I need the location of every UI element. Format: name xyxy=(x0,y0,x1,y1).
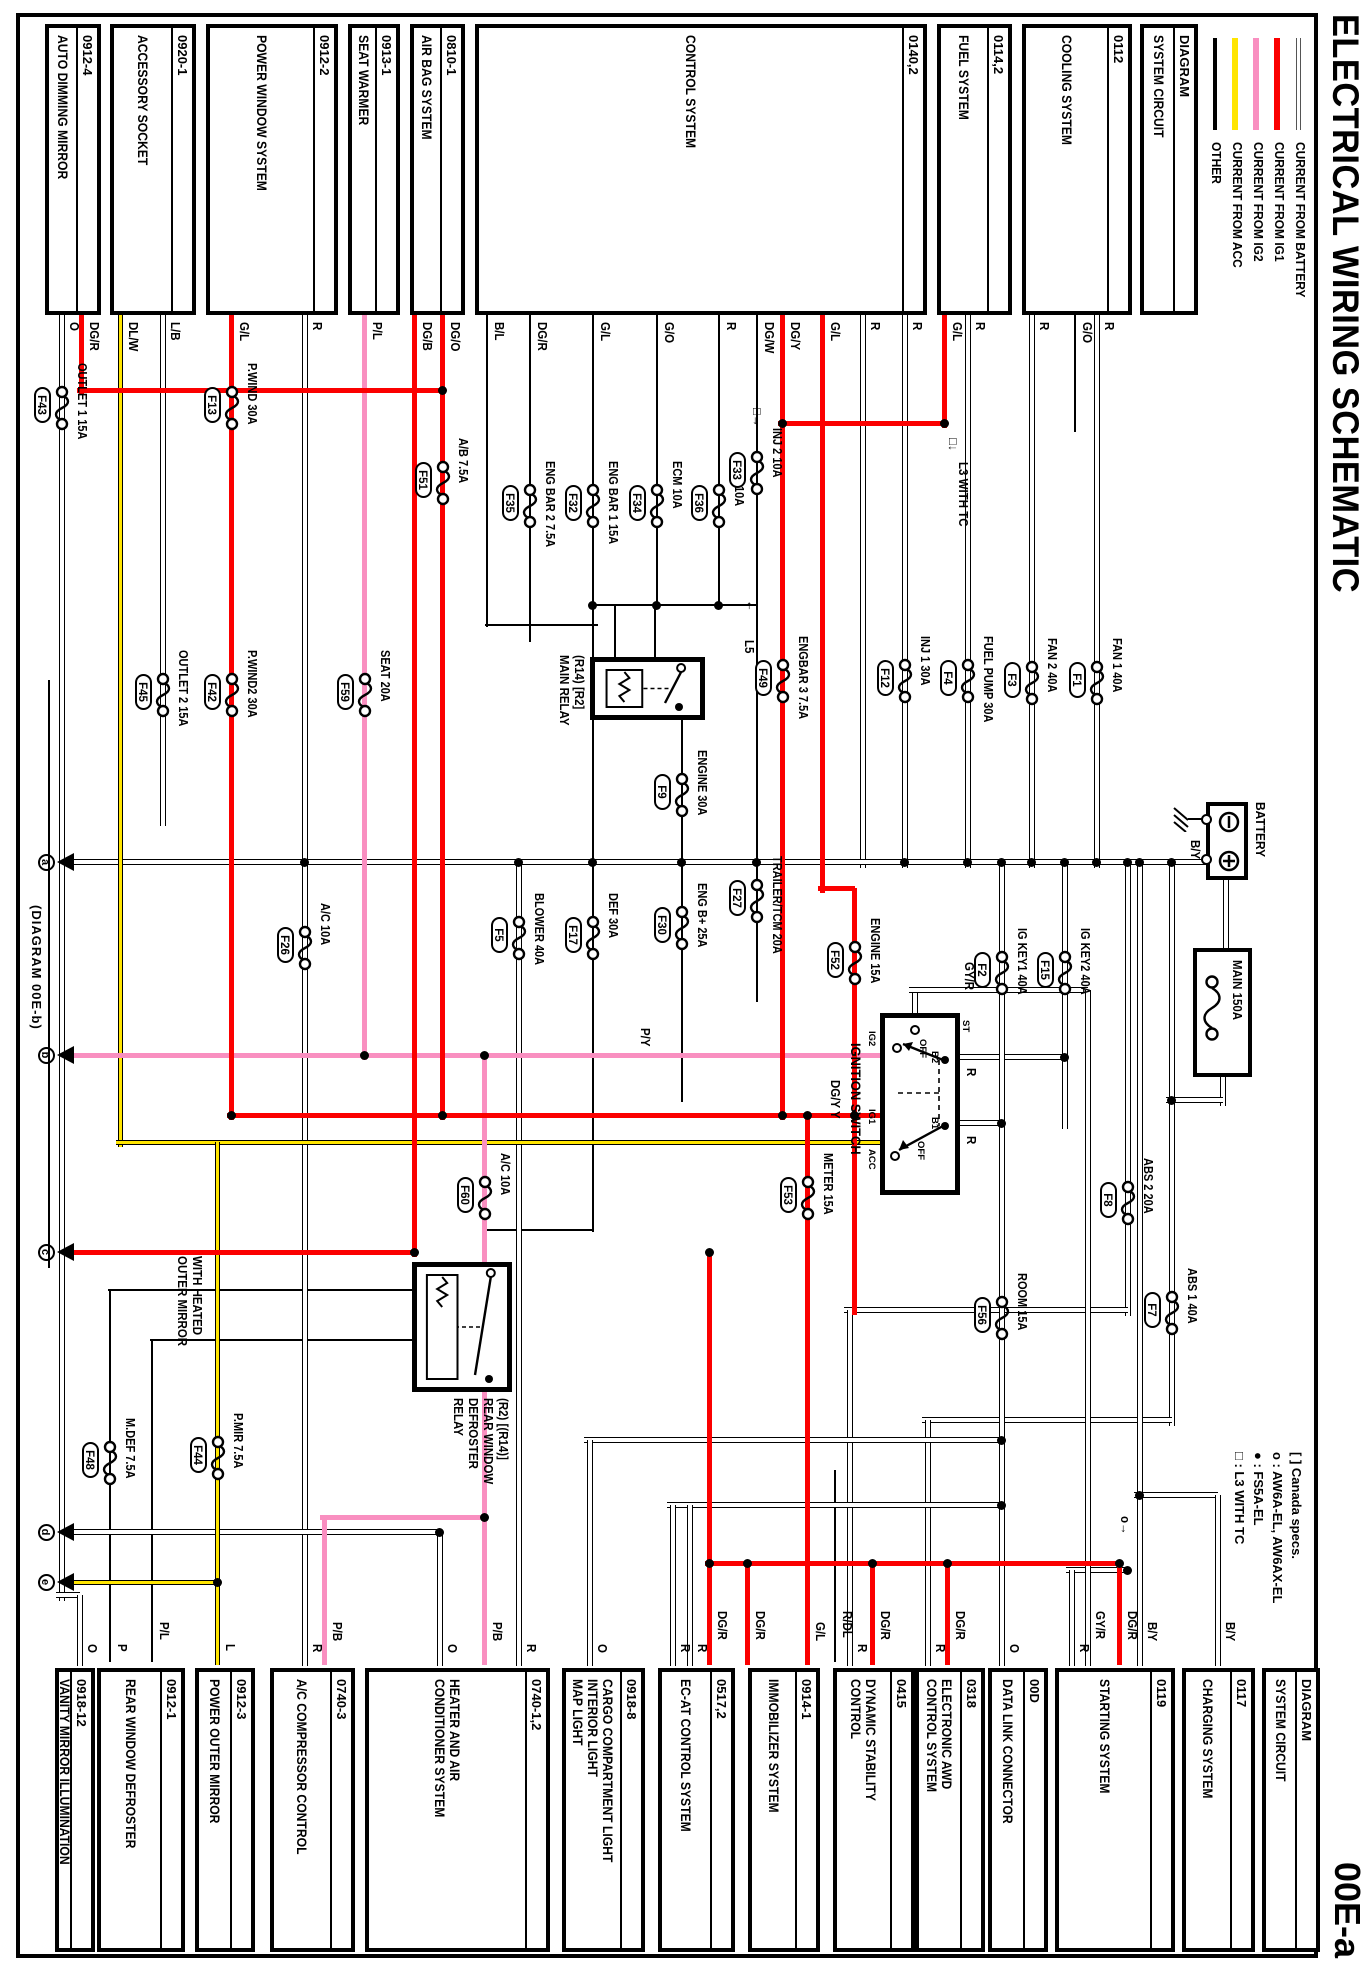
wire-code-label: R/DL xyxy=(840,1611,854,1638)
battery-symbol-icon xyxy=(1210,806,1244,876)
fuse-element-icon xyxy=(774,658,792,704)
wire-code-label: DG/Y Y xyxy=(828,1080,842,1119)
fuse-element-icon xyxy=(1023,660,1041,706)
wire-code-label: DG/B xyxy=(420,322,434,351)
fuse-F56 xyxy=(993,1295,1011,1341)
wire-pink xyxy=(320,1515,485,1520)
fuse-label-F8: ABS 2 20A xyxy=(1141,1158,1155,1214)
wire-code-label: O xyxy=(85,1644,99,1653)
wire-double xyxy=(687,1505,693,1666)
fuse-id-F17: F17 xyxy=(565,917,582,953)
fuse-element-icon xyxy=(673,905,691,951)
box-label: COOLING SYSTEM xyxy=(1026,35,1107,309)
system-box-dynamic-stability: 0415DYNAMIC STABILITYCONTROL xyxy=(833,1668,915,1952)
wire-black xyxy=(592,315,594,1232)
fuse-label-F42: P.WIND2 30A xyxy=(245,650,259,718)
wire-code-label: R xyxy=(868,322,882,330)
fuse-F1 xyxy=(1088,660,1106,706)
fuse-F26 xyxy=(296,925,314,971)
schematic-canvas: ELECTRICAL WIRING SCHEMATIC 00E-a CURREN… xyxy=(0,0,1368,1980)
wire-black xyxy=(486,315,488,627)
wire-double xyxy=(670,1505,676,1666)
fuse-label-F45: OUTLET 2 15A xyxy=(176,650,190,726)
fuse-label-F49: ENGBAR 3 7.5A xyxy=(796,636,810,719)
box-label-line: DYNAMIC STABILITY xyxy=(864,1679,879,1919)
fuse-element-icon xyxy=(53,385,71,431)
spec-note-line: □ : L3 WITH TC xyxy=(1230,1452,1249,1603)
wire-double xyxy=(902,315,908,868)
fuse-F30 xyxy=(673,905,691,951)
fuse-element-icon xyxy=(154,672,172,718)
fuse-label-F48: M.DEF 7.5A xyxy=(123,1418,137,1479)
battery-ground-wire xyxy=(1188,818,1202,820)
system-box-control-system: 0140,2CONTROL SYSTEM xyxy=(475,24,927,315)
relay-internals-icon xyxy=(417,1267,507,1387)
fuse-F2 xyxy=(993,950,1011,996)
box-code: 0912-2 xyxy=(313,28,334,311)
wire-code-label: R xyxy=(1037,322,1051,330)
wire-black xyxy=(1074,315,1076,432)
box-label-line: CONTROL xyxy=(849,1679,864,1919)
box-label-line: VANITY MIRROR ILLUMINATION xyxy=(57,1679,72,1919)
wire-code-label: DG/R xyxy=(715,1611,729,1640)
switch-terminal-B1: B1 xyxy=(929,1117,940,1129)
fuse-id-F8: F8 xyxy=(1100,1182,1117,1218)
box-label-line: POWER OUTER MIRROR xyxy=(207,1679,222,1919)
wire-code-label: P/B xyxy=(490,1622,504,1641)
fuse-element-icon xyxy=(1163,1290,1181,1336)
fuse-label-F26: A/C 10A xyxy=(318,903,332,945)
wire-code-label: DG/R xyxy=(1125,1611,1139,1640)
fuse-label-F7: ABS 1 40A xyxy=(1185,1268,1199,1324)
box-label: EC-AT CONTROL SYSTEM xyxy=(662,1679,710,1946)
box-label-line: SYSTEM CIRCUIT xyxy=(1151,35,1166,282)
connector-arrow-e xyxy=(57,1573,74,1591)
fuse-label-F27: TRAILER/TCM 20A xyxy=(770,856,784,954)
system-box-heater-and-air: 0740-1,2HEATER AND AIRCONDITIONER SYSTEM xyxy=(365,1668,550,1952)
fuse-F59 xyxy=(356,672,374,718)
fuse-id-F7: F7 xyxy=(1144,1292,1161,1328)
legend-line-yellow xyxy=(1232,38,1238,130)
fuse-id-F12: F12 xyxy=(877,660,894,696)
wire-double xyxy=(1029,315,1035,868)
fuse-id-F3: F3 xyxy=(1004,662,1021,698)
battery-terminal xyxy=(1201,814,1212,825)
wire-code-label: R xyxy=(964,1068,978,1076)
fuse-label-F1: FAN 1 40A xyxy=(1110,638,1124,692)
wire-red xyxy=(67,1250,415,1255)
fuse-id-F5: F5 xyxy=(491,917,508,953)
system-box-ec-at-control-system: 0517,2EC-AT CONTROL SYSTEM xyxy=(658,1668,735,1952)
system-box-immobilizer-system: 0914-1IMMOBILIZER SYSTEM xyxy=(748,1668,820,1952)
wire-code-label: L3 WITH TC xyxy=(956,462,970,527)
box-label-line: MAP LIGHT xyxy=(571,1679,586,1919)
legend-row: CURRENT FROM BATTERY xyxy=(1290,38,1308,358)
wire-code-label: L/B xyxy=(168,322,182,341)
wire-red xyxy=(778,421,945,426)
wire-black xyxy=(614,605,616,659)
fuse-element-icon xyxy=(521,483,539,529)
wire-red xyxy=(77,388,443,393)
wire-double xyxy=(437,1532,443,1666)
box-label: IMMOBILIZER SYSTEM xyxy=(752,1679,795,1946)
box-code: 0140,2 xyxy=(902,28,923,311)
fuse-id-F2: F2 xyxy=(974,952,991,988)
legend-line-pink xyxy=(1253,38,1259,130)
wire-double xyxy=(922,1417,1172,1423)
wire-code-label: B/Y xyxy=(1223,1622,1237,1641)
fuse-label-F3: FAN 2 40A xyxy=(1045,638,1059,692)
wire-double xyxy=(77,1595,83,1666)
wire-code-label: O xyxy=(67,322,81,331)
box-label: A/C COMPRESSOR CONTROL xyxy=(274,1679,330,1946)
main-fusible-link: MAIN 150A xyxy=(1193,948,1252,1077)
box-label: SEAT WARMER xyxy=(352,35,375,309)
wire-code-label: DG/R xyxy=(87,322,101,351)
box-label: HEATER AND AIRCONDITIONER SYSTEM xyxy=(369,1679,525,1946)
fuse-F35 xyxy=(521,483,539,529)
wire-code-label: R xyxy=(1077,1644,1091,1652)
fuse-label-F2: IG KEY1 40A xyxy=(1015,928,1029,995)
relay-internals-icon xyxy=(595,662,700,715)
main-fuse-label: MAIN 150A xyxy=(1230,960,1244,1020)
box-label: ACCESSORY SOCKET xyxy=(114,35,171,309)
wire-code-label: O xyxy=(445,1644,459,1653)
wire-double xyxy=(954,1054,1065,1060)
system-box-system-circuit: DIAGRAMSYSTEM CIRCUIT xyxy=(1140,24,1198,315)
fuse-label-F44: P.MIR 7.5A xyxy=(231,1413,245,1468)
box-label: AIR BAG SYSTEM xyxy=(414,35,440,309)
legend-label: CURRENT FROM IG1 xyxy=(1272,142,1287,262)
box-label: REAR WINDOW DEFROSTER xyxy=(101,1679,160,1946)
fuse-F60 xyxy=(476,1175,494,1221)
connector-bracket xyxy=(48,680,50,1268)
wire-yellow xyxy=(67,1580,218,1585)
wire-double xyxy=(59,315,65,1601)
box-code: DIAGRAM xyxy=(1173,28,1194,311)
fuse-id-F34: F34 xyxy=(629,485,646,521)
fuse-id-F52: F52 xyxy=(827,942,844,978)
rear-window-defroster-relay-label: (R2) [(R14)]REAR WINDOWDEFROSTERRELAY xyxy=(450,1398,510,1492)
box-label: CHARGING SYSTEM xyxy=(1186,1679,1230,1946)
box-label: POWER WINDOW SYSTEM xyxy=(210,35,313,309)
wire-code-label: G/O xyxy=(1080,322,1094,343)
system-box-accessory-socket: 0920-1ACCESSORY SOCKET xyxy=(110,24,196,315)
fuse-element-icon xyxy=(584,483,602,529)
fuse-id-F56: F56 xyxy=(974,1297,991,1333)
box-code: 0920-1 xyxy=(171,28,192,311)
fuse-element-icon xyxy=(993,950,1011,996)
switch-terminal-ACC: ACC xyxy=(866,1149,877,1170)
wire-double xyxy=(302,315,308,1666)
fuse-label-F30: ENG B+ 25A xyxy=(695,883,709,948)
system-box-seat-warmer: 0913-1SEAT WARMER xyxy=(348,24,400,315)
connector-arrow-d xyxy=(57,1523,74,1541)
fuse-id-F13: F13 xyxy=(204,387,221,423)
fuse-label-F59: SEAT 20A xyxy=(378,650,392,702)
fuse-F42 xyxy=(223,672,241,718)
fuse-id-F60: F60 xyxy=(457,1177,474,1213)
system-box-cargo-compartment-light: 0918-8CARGO COMPARTMENT LIGHTINTERIOR LI… xyxy=(562,1668,645,1952)
wire-double xyxy=(1094,315,1100,868)
wire-code-label: DG/R xyxy=(878,1611,892,1640)
box-label: DATA LINK CONNECTOR xyxy=(992,1679,1023,1946)
box-label-line: AIR BAG SYSTEM xyxy=(420,35,435,282)
main-relay xyxy=(590,657,705,720)
wire-code-label: R xyxy=(678,1644,692,1652)
fuse-element-icon xyxy=(434,460,452,506)
wire-code-label: P xyxy=(115,1644,129,1652)
box-code: 0912-4 xyxy=(76,28,97,311)
schematic-page: ELECTRICAL WIRING SCHEMATIC 00E-a CURREN… xyxy=(0,0,1368,1980)
wire-double xyxy=(954,1120,1002,1126)
box-label: POWER OUTER MIRROR xyxy=(199,1679,230,1946)
fuse-F49 xyxy=(774,658,792,704)
wire-code-label: G/L xyxy=(598,322,612,341)
box-label: SYSTEM CIRCUIT xyxy=(1266,1679,1295,1946)
fuse-F36 xyxy=(710,483,728,529)
connector-circle-c: c xyxy=(38,1244,55,1261)
rear-window-defroster-relay-label-line: REAR WINDOW xyxy=(480,1398,495,1484)
wire-code-label: B/L xyxy=(492,322,506,341)
wire-red xyxy=(943,315,948,428)
battery-terminal xyxy=(1201,854,1212,865)
wire-code-label: DG/R xyxy=(753,1611,767,1640)
box-label-line: CARGO COMPARTMENT LIGHT xyxy=(601,1679,616,1919)
fuse-element-icon xyxy=(748,878,766,924)
fuse-id-F33: F33 xyxy=(729,452,746,488)
fuse-F45 xyxy=(154,672,172,718)
wire-black xyxy=(718,315,720,607)
fuse-label-F33: INJ 2 10A xyxy=(770,428,784,478)
fuse-label-F34: ECM 10A xyxy=(670,461,684,509)
ignition-switch-label: IGNITION SWITCH xyxy=(848,1043,864,1155)
wire-code-label: R xyxy=(910,322,924,330)
box-label: CONTROL SYSTEM xyxy=(479,35,902,309)
fuse-label-F43: OUTLET 1 15A xyxy=(75,363,89,439)
box-label-line: COOLING SYSTEM xyxy=(1059,35,1074,282)
legend-row: CURRENT FROM IG1 xyxy=(1269,38,1287,358)
wire-code-label: L5 xyxy=(742,640,756,653)
fuse-label-F60: A/C 10A xyxy=(498,1153,512,1195)
wire-double xyxy=(1215,1495,1221,1666)
fuse-element-icon xyxy=(223,672,241,718)
fuse-label-F17: DEF 30A xyxy=(606,893,620,938)
box-label: DYNAMIC STABILITYCONTROL xyxy=(837,1679,890,1946)
legend-label: CURRENT FROM IG2 xyxy=(1251,142,1266,262)
fuse-element-icon xyxy=(584,915,602,961)
ground-icon xyxy=(1167,806,1190,832)
legend-line-red xyxy=(1274,38,1280,130)
wire-double xyxy=(584,1437,1002,1443)
tc-marker: □→ xyxy=(750,408,764,426)
wire-code-label: DG/R xyxy=(953,1611,967,1640)
page-title: ELECTRICAL WIRING SCHEMATIC xyxy=(1324,14,1366,593)
wire-code-label: DG/O xyxy=(448,322,462,351)
box-code: 0517,2 xyxy=(710,1672,731,1948)
l5-arrow: ← xyxy=(744,600,758,612)
system-box-auto-dimming-mirror: 0912-4AUTO DIMMING MIRROR xyxy=(45,24,101,315)
switch-terminal-OFF: OFF xyxy=(917,1039,928,1058)
box-code: 00D xyxy=(1023,1672,1044,1948)
box-code: 0918-8 xyxy=(620,1672,641,1948)
wire-code-label: G/L xyxy=(813,1622,827,1641)
main-relay-label-line: (R14) [R2] xyxy=(571,655,586,726)
box-label-line: REAR WINDOW DEFROSTER xyxy=(123,1679,138,1919)
wire-code-label: DG/W xyxy=(762,322,776,353)
fuse-id-F4: F4 xyxy=(940,660,957,696)
box-code: 0913-1 xyxy=(375,28,396,311)
wire-black xyxy=(834,1470,836,1662)
wire-pink xyxy=(67,1053,880,1058)
wire-code-label: R xyxy=(310,322,324,330)
wire-code-label: R xyxy=(524,1644,538,1652)
wire-code-label: R xyxy=(933,1644,947,1652)
fuse-element-icon xyxy=(748,450,766,496)
box-label: SYSTEM CIRCUIT xyxy=(1144,35,1173,309)
box-code: 0114,2 xyxy=(987,28,1008,311)
box-code: 0318 xyxy=(960,1672,981,1948)
box-label: STARTING SYSTEM xyxy=(1059,1679,1150,1946)
fuse-F53 xyxy=(799,1175,817,1221)
system-box-air-bag-system: 0810-1AIR BAG SYSTEM xyxy=(410,24,465,315)
box-label-line: STARTING SYSTEM xyxy=(1097,1679,1112,1919)
wire-double xyxy=(1137,862,1143,1666)
fuse-element-icon xyxy=(846,940,864,986)
fuse-element-icon xyxy=(993,1295,1011,1341)
box-code: DIAGRAM xyxy=(1295,1672,1316,1948)
box-label-line: ACCESSORY SOCKET xyxy=(135,35,150,282)
page-code: 00E-a xyxy=(1326,1862,1368,1958)
fuse-id-F36: F36 xyxy=(691,485,708,521)
wire-double xyxy=(1125,862,1131,1316)
wire-black xyxy=(529,315,531,642)
legend-label: CURRENT FROM ACC xyxy=(1230,142,1245,268)
wire-code-label: P/B xyxy=(330,1622,344,1641)
wire-code-label: G/L xyxy=(828,322,842,341)
switch-terminal-IG1: IG1 xyxy=(866,1109,877,1124)
wire-code-label: DG/R xyxy=(535,322,549,351)
connector-circle-e: e xyxy=(38,1574,55,1591)
fuse-id-F15: F15 xyxy=(1037,952,1054,988)
wire-black xyxy=(151,1340,153,1662)
wire-red xyxy=(1118,1563,1123,1665)
box-label-line: POWER WINDOW SYSTEM xyxy=(254,35,269,282)
box-label: VANITY MIRROR ILLUMINATION xyxy=(59,1679,70,1946)
wire-red xyxy=(708,1252,713,1665)
main-relay-label-line: MAIN RELAY xyxy=(556,655,571,726)
fuse-id-F26: F26 xyxy=(277,927,294,963)
fuse-F34 xyxy=(648,483,666,529)
switch-terminal-B2: B2 xyxy=(929,1051,940,1063)
wire-black xyxy=(482,1229,593,1231)
wire-code-label: R xyxy=(310,1644,324,1652)
system-box-electronic-awd: 0318ELECTRONIC AWDCONTROL SYSTEM xyxy=(915,1668,985,1952)
fuse-id-F30: F30 xyxy=(654,907,671,943)
wire-code-label: R xyxy=(964,1136,978,1144)
wire-red xyxy=(441,315,446,1120)
legend-label: CURRENT FROM BATTERY xyxy=(1293,142,1308,297)
fuse-element-icon xyxy=(1197,968,1222,1058)
system-box-starting-system: 0119STARTING SYSTEM xyxy=(1055,1668,1175,1952)
wire-black xyxy=(485,624,598,626)
fuse-element-icon xyxy=(1056,950,1074,996)
wire-double xyxy=(667,1502,1002,1508)
box-label-line: AUTO DIMMING MIRROR xyxy=(55,35,70,282)
wire-code-label: P/L xyxy=(157,1622,171,1640)
system-box-vanity-mirror-illumination: 0918-12VANITY MIRROR ILLUMINATION xyxy=(55,1668,95,1952)
fuse-label-F51: A/B 7.5A xyxy=(456,438,470,483)
wire-code-label: O xyxy=(595,1644,609,1653)
wire-code-label: P/L xyxy=(370,322,384,340)
fuse-label-F4: FUEL PUMP 30A xyxy=(981,636,995,722)
wire-yellow xyxy=(216,1142,221,1665)
fuse-id-F44: F44 xyxy=(190,1437,207,1473)
fuse-element-icon xyxy=(209,1435,227,1481)
wire-yellow xyxy=(116,1140,880,1145)
fuse-element-icon xyxy=(223,385,241,431)
wire-black xyxy=(654,605,656,659)
fuse-F48 xyxy=(101,1440,119,1486)
fuse-element-icon xyxy=(101,1440,119,1486)
wire-red xyxy=(821,315,826,893)
rear-window-defroster-relay-label-line: (R2) [(R14)] xyxy=(495,1398,510,1484)
box-code: 0914-1 xyxy=(795,1672,816,1948)
box-code: 0912-3 xyxy=(230,1672,251,1948)
box-label-line: ELECTRONIC AWD xyxy=(940,1679,955,1919)
system-box-fuel-system: 0114,2FUEL SYSTEM xyxy=(937,24,1012,315)
spec-note-line: ● : FS5A-EL xyxy=(1249,1452,1268,1603)
wire-double xyxy=(965,315,971,868)
legend-line-black xyxy=(1214,38,1218,130)
wire-red xyxy=(746,1563,751,1665)
wire-yellow xyxy=(119,315,124,1147)
wire-black xyxy=(656,315,658,607)
wire-red xyxy=(818,886,855,891)
fuse-label-F53: METER 15A xyxy=(821,1153,835,1215)
box-label-line: HEATER AND AIR xyxy=(447,1679,462,1919)
wire-pink xyxy=(323,1517,328,1665)
rear-window-defroster-relay xyxy=(412,1262,512,1392)
fuse-label-F9: ENGINE 30A xyxy=(695,750,709,815)
rear-window-defroster-relay-label-line: DEFROSTER xyxy=(465,1398,480,1484)
legend-row: OTHER xyxy=(1206,38,1224,358)
wire-code-label: R xyxy=(973,322,987,330)
fuse-F44 xyxy=(209,1435,227,1481)
fuse-element-icon xyxy=(959,658,977,704)
spec-note-line: [ ] Canada specs. xyxy=(1287,1452,1306,1603)
fuse-element-icon xyxy=(356,672,374,718)
fuse-id-F45: F45 xyxy=(135,674,152,710)
wire-code-label: R xyxy=(724,322,738,330)
box-code: 0112 xyxy=(1107,28,1128,311)
fuse-label-F35: ENG BAR 2 7.5A xyxy=(543,461,557,547)
box-label: CARGO COMPARTMENT LIGHTINTERIOR LIGHTMAP… xyxy=(566,1679,620,1946)
fuse-F9 xyxy=(673,772,691,818)
wire-code-label: R xyxy=(695,1644,709,1652)
box-label-line: DATA LINK CONNECTOR xyxy=(1000,1679,1015,1919)
system-box-power-outer-mirror: 0912-3POWER OUTER MIRROR xyxy=(195,1668,255,1952)
fuse-label-F52: ENGINE 15A xyxy=(868,918,882,983)
switch-terminal-OFF: OFF xyxy=(915,1141,926,1160)
fuse-id-F53: F53 xyxy=(780,1177,797,1213)
fuse-F5 xyxy=(510,915,528,961)
diagram-ref: (DIAGRAM 00E-b) xyxy=(29,905,44,1030)
fuse-element-icon xyxy=(476,1175,494,1221)
fuse-F7 xyxy=(1163,1290,1181,1336)
connector-arrow-b xyxy=(57,1046,74,1064)
box-code: 0810-1 xyxy=(440,28,461,311)
